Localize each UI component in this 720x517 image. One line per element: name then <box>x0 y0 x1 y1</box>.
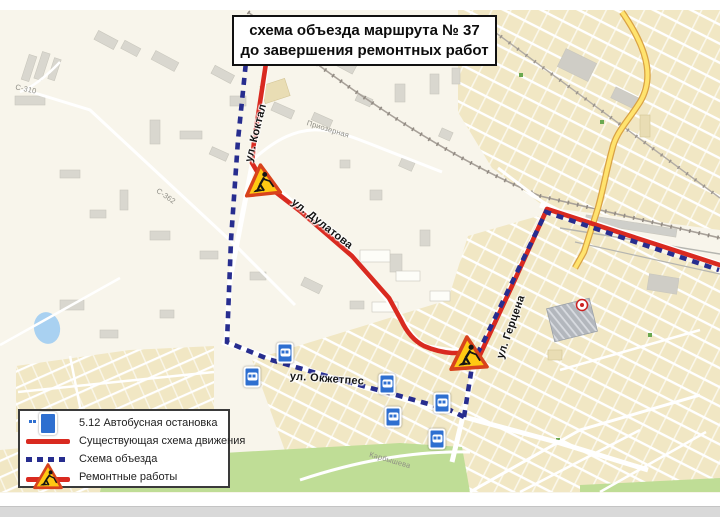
poi-badge <box>577 300 588 311</box>
bus-stop-marker[interactable] <box>277 343 294 364</box>
bus-stop-marker[interactable] <box>385 407 402 428</box>
title-box: схема объезда маршрута № 37 до завершени… <box>232 15 497 66</box>
bus-stop-marker[interactable] <box>429 429 446 450</box>
legend: 5.12 Автобусная остановка Существующая с… <box>18 409 230 488</box>
road-works-sign <box>447 334 489 373</box>
title-line-2: до завершения ремонтных работ <box>240 41 488 61</box>
legend-bus-stop-label: 5.12 Автобусная остановка <box>79 417 217 429</box>
legend-row-existing-route: Существующая схема движения <box>26 432 222 450</box>
bottom-margin <box>0 493 720 506</box>
legend-row-bus-stop: 5.12 Автобусная остановка <box>26 414 222 432</box>
existing-route-swatch <box>26 439 70 444</box>
title-line-1: схема объезда маршрута № 37 <box>249 21 480 41</box>
road-works-sign <box>241 161 282 199</box>
detour-route-swatch <box>26 457 70 462</box>
road-works-icon <box>33 463 63 490</box>
legend-row-road-works: Ремонтные работы <box>26 468 222 486</box>
top-margin <box>0 0 720 10</box>
legend-detour-label: Схема объезда <box>79 453 157 465</box>
legend-existing-route-label: Существующая схема движения <box>79 435 245 447</box>
bottom-bar <box>0 506 720 517</box>
detour-scheme-page: ул. Кокталул. Дулатоваул. Герценаул. Окж… <box>0 0 720 517</box>
bus-stop-marker[interactable] <box>244 367 261 388</box>
bus-stop-marker[interactable] <box>434 393 451 414</box>
bus-stop-marker[interactable] <box>379 374 396 395</box>
legend-road-works-label: Ремонтные работы <box>79 471 177 483</box>
